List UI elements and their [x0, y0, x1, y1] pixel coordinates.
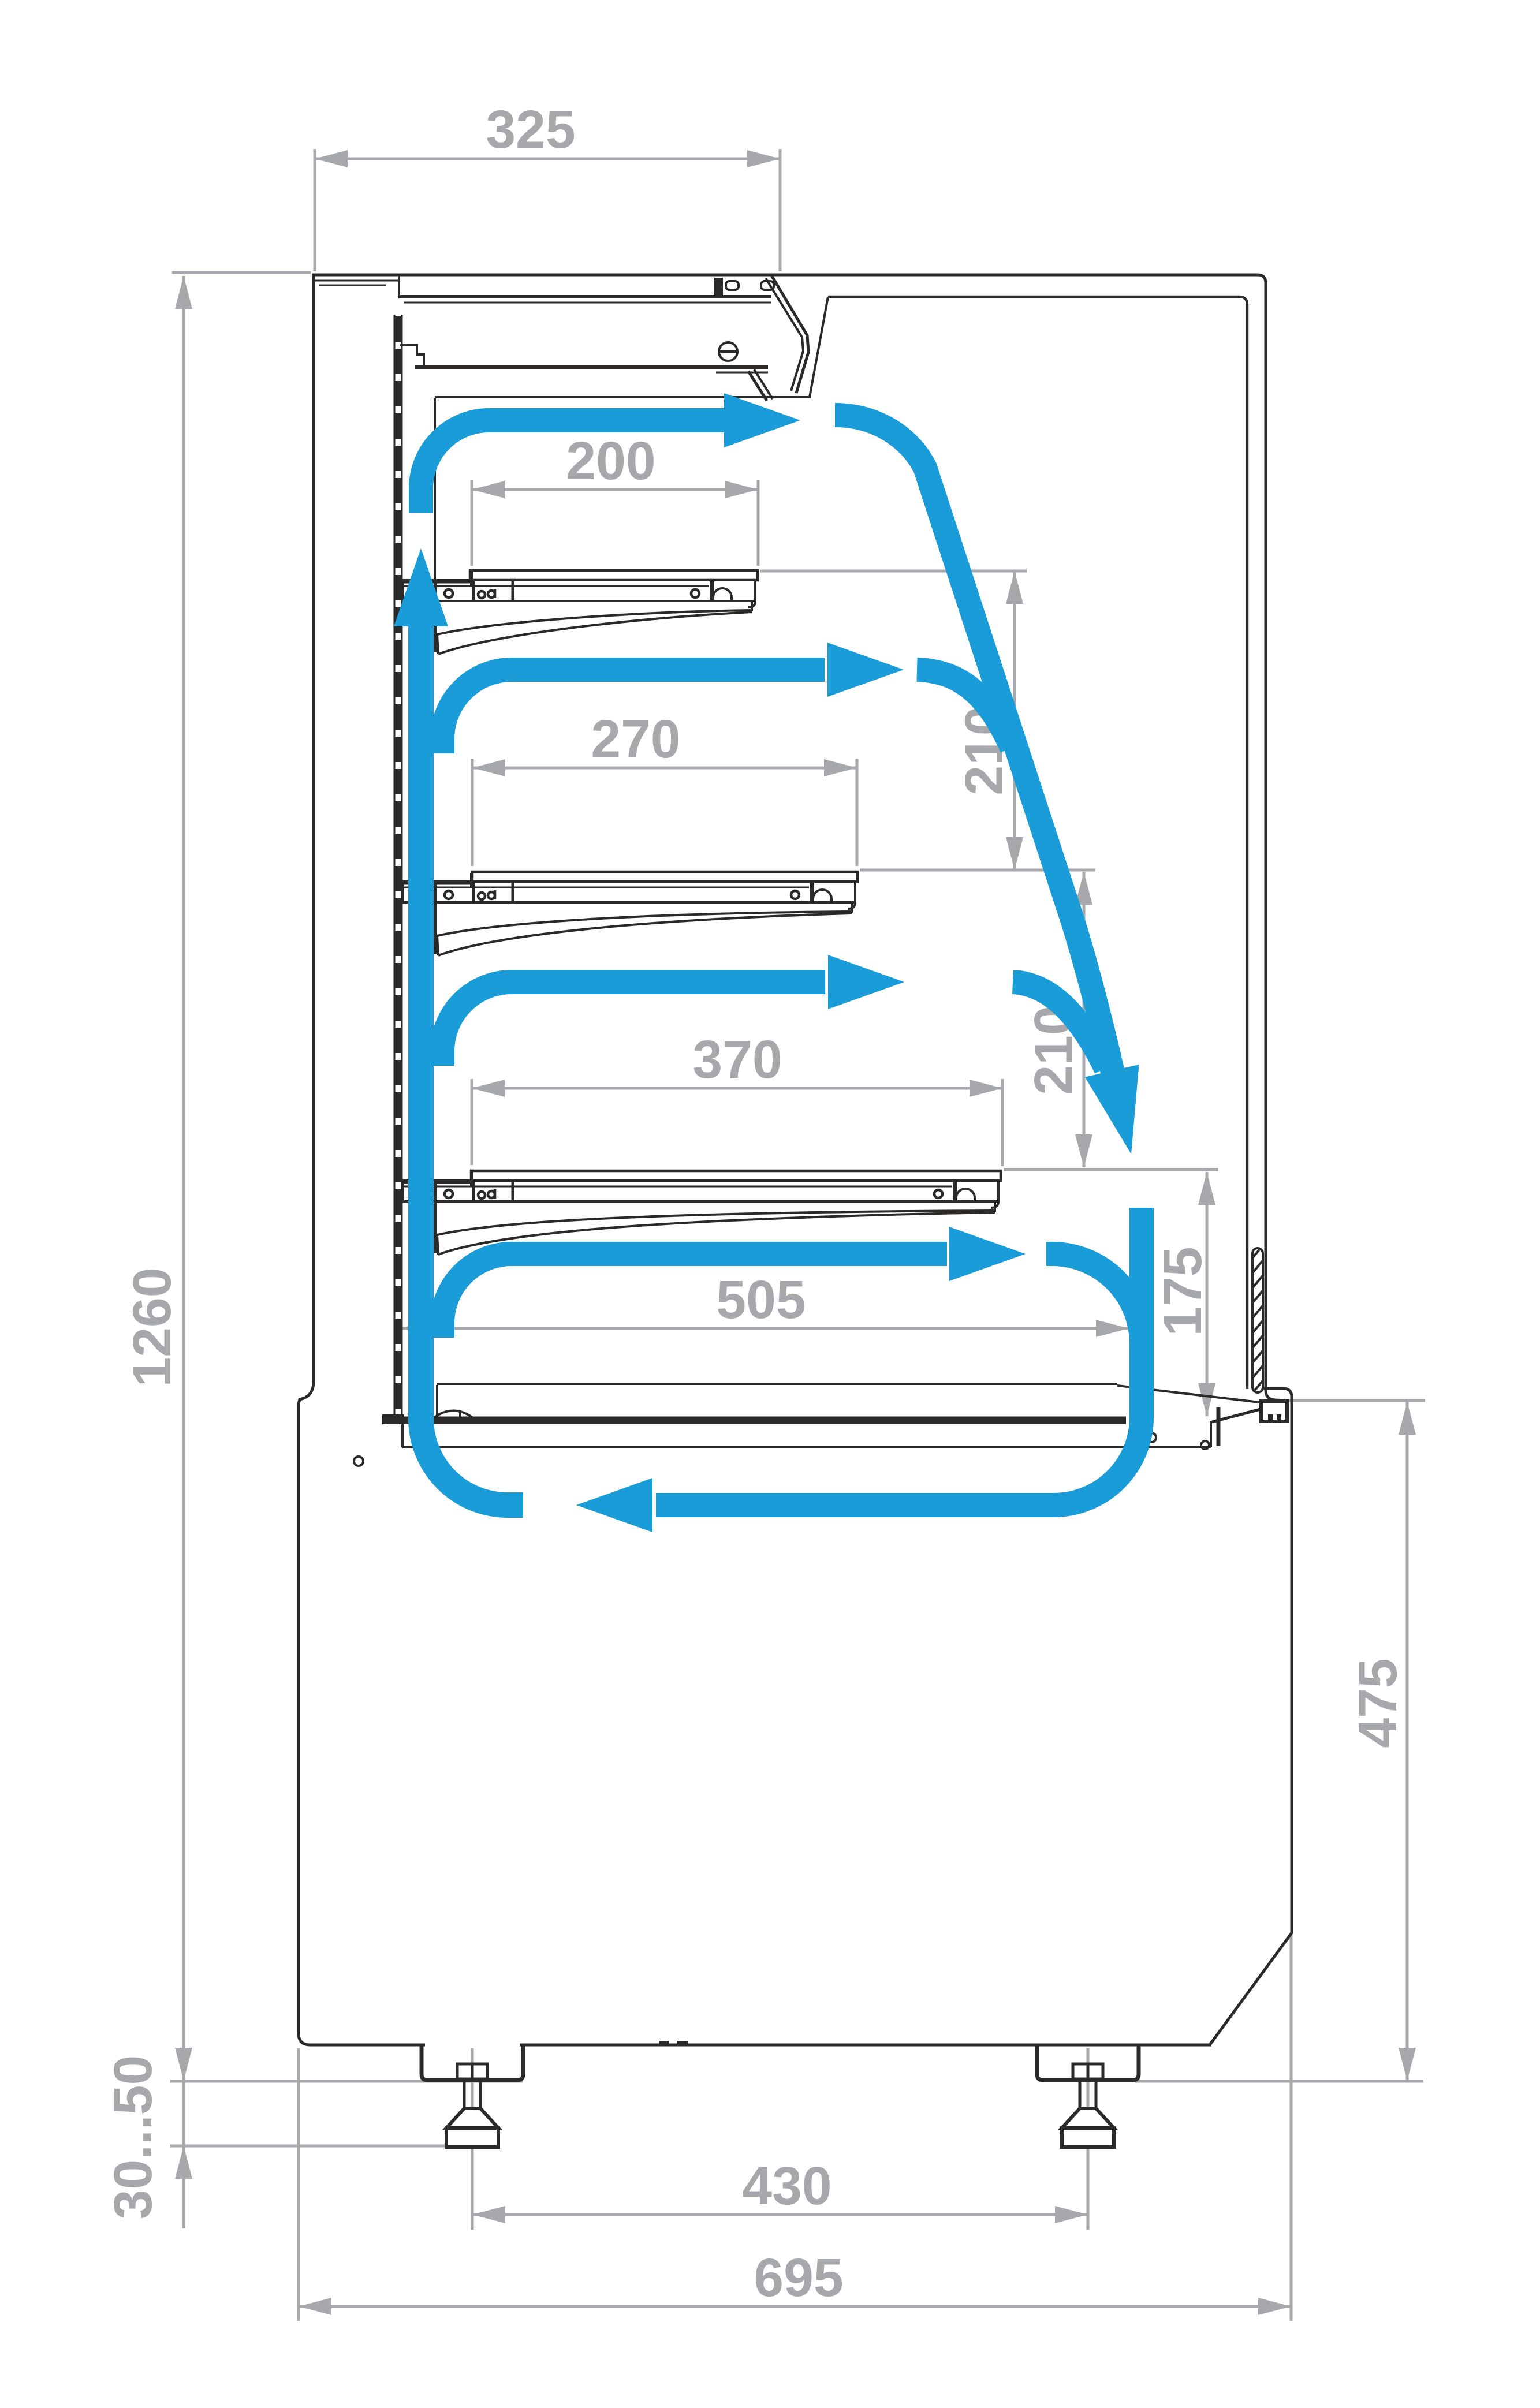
svg-text:175: 175 — [1153, 1246, 1213, 1336]
svg-text:370: 370 — [692, 1029, 782, 1089]
svg-text:270: 270 — [591, 709, 680, 769]
svg-text:30...50: 30...50 — [103, 2055, 163, 2219]
svg-text:200: 200 — [566, 431, 655, 491]
svg-text:505: 505 — [716, 1270, 806, 1330]
svg-text:475: 475 — [1348, 1658, 1408, 1748]
svg-text:325: 325 — [486, 99, 575, 159]
svg-text:430: 430 — [742, 2156, 831, 2216]
svg-text:695: 695 — [754, 2248, 843, 2308]
svg-text:1260: 1260 — [122, 1268, 182, 1387]
